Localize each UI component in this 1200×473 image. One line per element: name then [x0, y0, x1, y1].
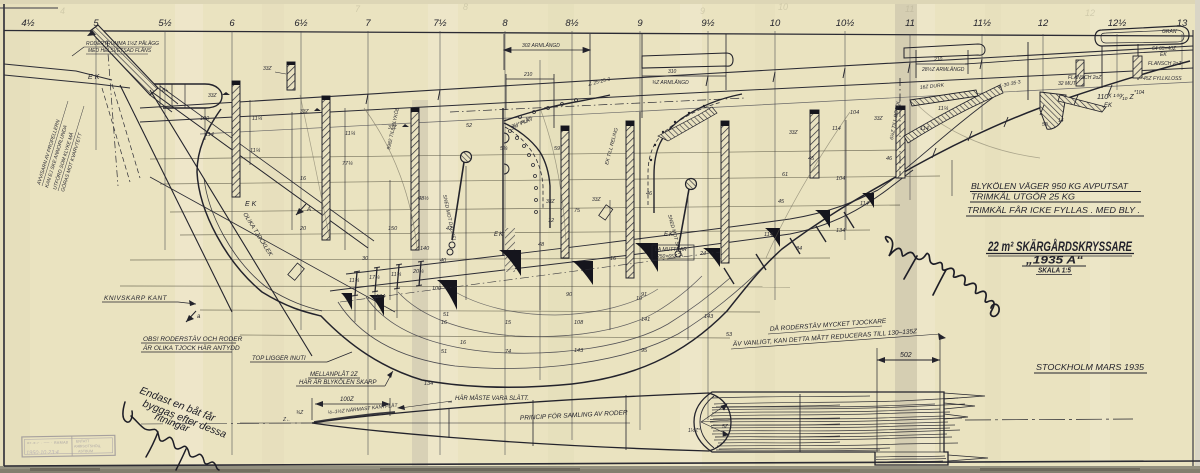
- svg-text:7: 7: [365, 18, 371, 29]
- svg-text:12: 12: [548, 218, 554, 224]
- svg-text:14: 14: [1058, 118, 1064, 124]
- svg-text:8+: 8+: [162, 88, 169, 94]
- svg-text:A: A: [306, 207, 311, 213]
- svg-text:16: 16: [441, 320, 448, 326]
- svg-text:46: 46: [646, 191, 653, 197]
- svg-text:95: 95: [641, 348, 648, 354]
- svg-text:16: 16: [300, 176, 307, 182]
- svg-text:59: 59: [554, 146, 560, 152]
- svg-text:51: 51: [441, 349, 447, 355]
- svg-text:9: 9: [637, 18, 643, 29]
- svg-text:48½: 48½: [418, 195, 429, 202]
- svg-text:51: 51: [443, 312, 449, 318]
- svg-text:33Z: 33Z: [546, 199, 556, 205]
- svg-text:12½: 12½: [1108, 18, 1127, 29]
- svg-text:EK: EK: [245, 201, 258, 208]
- svg-text:EK: EK: [1104, 103, 1113, 109]
- svg-text:12: 12: [1038, 18, 1049, 29]
- svg-text:13: 13: [1177, 18, 1188, 29]
- svg-text:5¼: 5¼: [500, 146, 508, 152]
- svg-text:9½: 9½: [701, 18, 714, 29]
- svg-text:7½: 7½: [433, 18, 446, 29]
- svg-text:33Z: 33Z: [208, 93, 218, 99]
- svg-text:20: 20: [299, 226, 307, 232]
- svg-text:114: 114: [860, 201, 869, 207]
- svg-text:GRAN: GRAN: [1162, 29, 1177, 35]
- svg-text:250×65Z: 250×65Z: [656, 254, 678, 260]
- svg-text:HÄR MÅSTE VARA SLÄTT.: HÄR MÅSTE VARA SLÄTT.: [455, 395, 529, 402]
- svg-text:10: 10: [636, 296, 643, 302]
- svg-text:8: 8: [463, 2, 468, 12]
- svg-text:50: 50: [1042, 122, 1048, 128]
- svg-text:11¼: 11¼: [250, 148, 261, 154]
- svg-text:33Z: 33Z: [874, 116, 884, 122]
- svg-text:22 m² SKÄRGÅRDSKRYSSARE: 22 m² SKÄRGÅRDSKRYSSARE: [987, 239, 1132, 254]
- svg-text:20¼: 20¼: [412, 269, 424, 275]
- svg-text:ÄR OLIKA TJOCK HÄR ANTYDD: ÄR OLIKA TJOCK HÄR ANTYDD: [142, 344, 240, 352]
- svg-text:134: 134: [836, 228, 845, 234]
- svg-text:45: 45: [808, 156, 815, 162]
- svg-text:45Z FYLLKLOSS: 45Z FYLLKLOSS: [1143, 76, 1182, 82]
- svg-text:9: 9: [700, 6, 705, 16]
- svg-text:¾Z ARMLÄNGD: ¾Z ARMLÄNGD: [652, 79, 689, 86]
- svg-text:TOP LIGGER INUTI: TOP LIGGER INUTI: [252, 356, 306, 362]
- svg-text:8½: 8½: [565, 18, 578, 29]
- svg-text:114: 114: [764, 232, 773, 238]
- svg-text:LA MUTTRAR: LA MUTTRAR: [655, 247, 687, 253]
- svg-text:302 ARMLÄNGD: 302 ARMLÄNGD: [522, 42, 560, 49]
- svg-text:11¼: 11¼: [345, 131, 356, 137]
- svg-text:6: 6: [229, 18, 235, 29]
- svg-text:110ᴷ ¹⁰⁰⁄₁₀ Z: 110ᴷ ¹⁰⁰⁄₁₀ Z: [1097, 93, 1134, 101]
- svg-text:10: 10: [770, 18, 781, 29]
- svg-text:KNIVSKARP KANT: KNIVSKARP KANT: [104, 295, 168, 302]
- svg-text:114: 114: [920, 126, 929, 132]
- svg-text:114: 114: [205, 132, 214, 138]
- svg-text:28½Z ARMLÄNGD: 28½Z ARMLÄNGD: [921, 66, 965, 73]
- svg-text:140: 140: [420, 246, 430, 252]
- svg-text:„1935 A“: „1935 A“: [1025, 255, 1084, 267]
- svg-text:48: 48: [538, 242, 545, 248]
- svg-text:104: 104: [850, 110, 859, 116]
- svg-text:OBS! RODERSTÄV OCH RODER: OBS! RODERSTÄV OCH RODER: [143, 335, 243, 343]
- svg-text:502: 502: [900, 352, 912, 359]
- svg-text:104: 104: [836, 176, 845, 182]
- svg-text:HÄR ÄR BLYKÖLEN SKARP: HÄR ÄR BLYKÖLEN SKARP: [299, 379, 376, 386]
- svg-text:16: 16: [610, 256, 617, 262]
- svg-text:11¼: 11¼: [349, 278, 360, 284]
- svg-text:MED HELSVETSAD FLÄNS: MED HELSVETSAD FLÄNS: [88, 47, 152, 54]
- svg-text:RODERTRUMMA 1½Z PÅLÄGG: RODERTRUMMA 1½Z PÅLÄGG: [86, 40, 159, 47]
- svg-text:90: 90: [566, 292, 573, 298]
- svg-text:11: 11: [905, 18, 915, 29]
- svg-text:17¼: 17¼: [369, 275, 380, 281]
- svg-text:11½: 11½: [973, 18, 991, 29]
- svg-text:33Z: 33Z: [388, 125, 398, 131]
- svg-text:EK: EK: [1160, 52, 1167, 58]
- svg-text:4: 4: [60, 6, 65, 16]
- svg-text:45: 45: [778, 199, 785, 205]
- svg-text:11: 11: [905, 4, 914, 14]
- svg-text:STOCKHOLM MARS 1935: STOCKHOLM MARS 1935: [1036, 362, 1144, 372]
- svg-text:АЯВISОTSНÖЦ: АЯВISОTSНÖЦ: [74, 444, 101, 448]
- svg-text:16: 16: [460, 340, 467, 346]
- svg-text:SKALA 1:5: SKALA 1:5: [1038, 268, 1071, 275]
- svg-text:TRIMKÄL FÅR ICKE FYLLAS .: TRIMKÄL FÅR ICKE FYLLAS . MED BLY .: [967, 206, 1140, 215]
- svg-text:33Z: 33Z: [789, 130, 799, 136]
- svg-text:10½: 10½: [836, 18, 855, 29]
- svg-text:100Z: 100Z: [340, 397, 354, 403]
- svg-text:10: 10: [778, 2, 788, 12]
- svg-text:210: 210: [523, 72, 533, 78]
- svg-text:42: 42: [446, 226, 452, 232]
- svg-text:EK: EK: [88, 74, 101, 81]
- svg-text:ENTATT: ENTATT: [76, 439, 90, 443]
- svg-text:33Z: 33Z: [592, 197, 602, 203]
- svg-text:11¼: 11¼: [391, 272, 402, 278]
- svg-text:FLANSCH 2oZ: FLANSCH 2oZ: [1148, 61, 1182, 67]
- svg-text:134: 134: [424, 381, 433, 387]
- svg-text:52: 52: [466, 123, 472, 129]
- svg-text:210: 210: [933, 57, 943, 63]
- svg-text:MELLANPLÅT 2Z: MELLANPLÅT 2Z: [310, 371, 358, 378]
- svg-text:1950·10·23:4: 1950·10·23:4: [26, 450, 59, 457]
- svg-text:*104: *104: [1134, 90, 1145, 96]
- svg-text:74: 74: [505, 349, 511, 355]
- svg-text:EK: EK: [494, 232, 504, 238]
- svg-text:¤×∙≡∙⌐ ∙ ── ∙ ЯAMA8: ¤×∙≡∙⌐ ∙ ── ∙ ЯAMA8: [27, 441, 68, 446]
- svg-text:11¼: 11¼: [252, 116, 263, 122]
- svg-text:TRIMKÄL UTGÖR 25 KG: TRIMKÄL UTGÖR 25 KG: [971, 193, 1075, 202]
- svg-text:6½: 6½: [294, 18, 307, 29]
- svg-text:40: 40: [440, 258, 447, 264]
- svg-text:114: 114: [832, 126, 841, 132]
- svg-text:15: 15: [505, 320, 512, 326]
- svg-text:77¼: 77¼: [342, 161, 353, 167]
- svg-text:11¼: 11¼: [938, 106, 949, 112]
- svg-text:30: 30: [362, 256, 369, 262]
- svg-text:108: 108: [574, 320, 584, 326]
- svg-text:5½: 5½: [158, 18, 171, 29]
- svg-text:33Z: 33Z: [300, 109, 310, 115]
- svg-text:8: 8: [502, 18, 508, 29]
- svg-text:Z←: Z←: [282, 417, 291, 423]
- svg-text:4½: 4½: [21, 18, 34, 29]
- svg-text:¾Z: ¾Z: [296, 410, 304, 416]
- svg-text:46: 46: [886, 156, 893, 162]
- svg-text:BLYKÖLEN VÄGER 950 KG AVP: BLYKÖLEN VÄGER 950 KG AVPUTSAT: [971, 182, 1129, 191]
- svg-text:33Z: 33Z: [263, 66, 273, 72]
- svg-text:53: 53: [726, 332, 733, 338]
- svg-text:75: 75: [574, 208, 581, 214]
- svg-text:EK: EK: [664, 232, 674, 238]
- svg-text:310: 310: [668, 69, 677, 75]
- svg-text:150: 150: [388, 226, 398, 232]
- svg-text:141: 141: [641, 317, 650, 323]
- svg-text:32 MUT: 32 MUT: [1058, 81, 1077, 87]
- svg-text:143: 143: [704, 314, 714, 320]
- svg-text:12: 12: [1085, 8, 1095, 18]
- svg-text:143: 143: [574, 348, 584, 354]
- svg-text:ASTBUM: ASTBUM: [78, 449, 93, 453]
- svg-text:61: 61: [782, 172, 788, 178]
